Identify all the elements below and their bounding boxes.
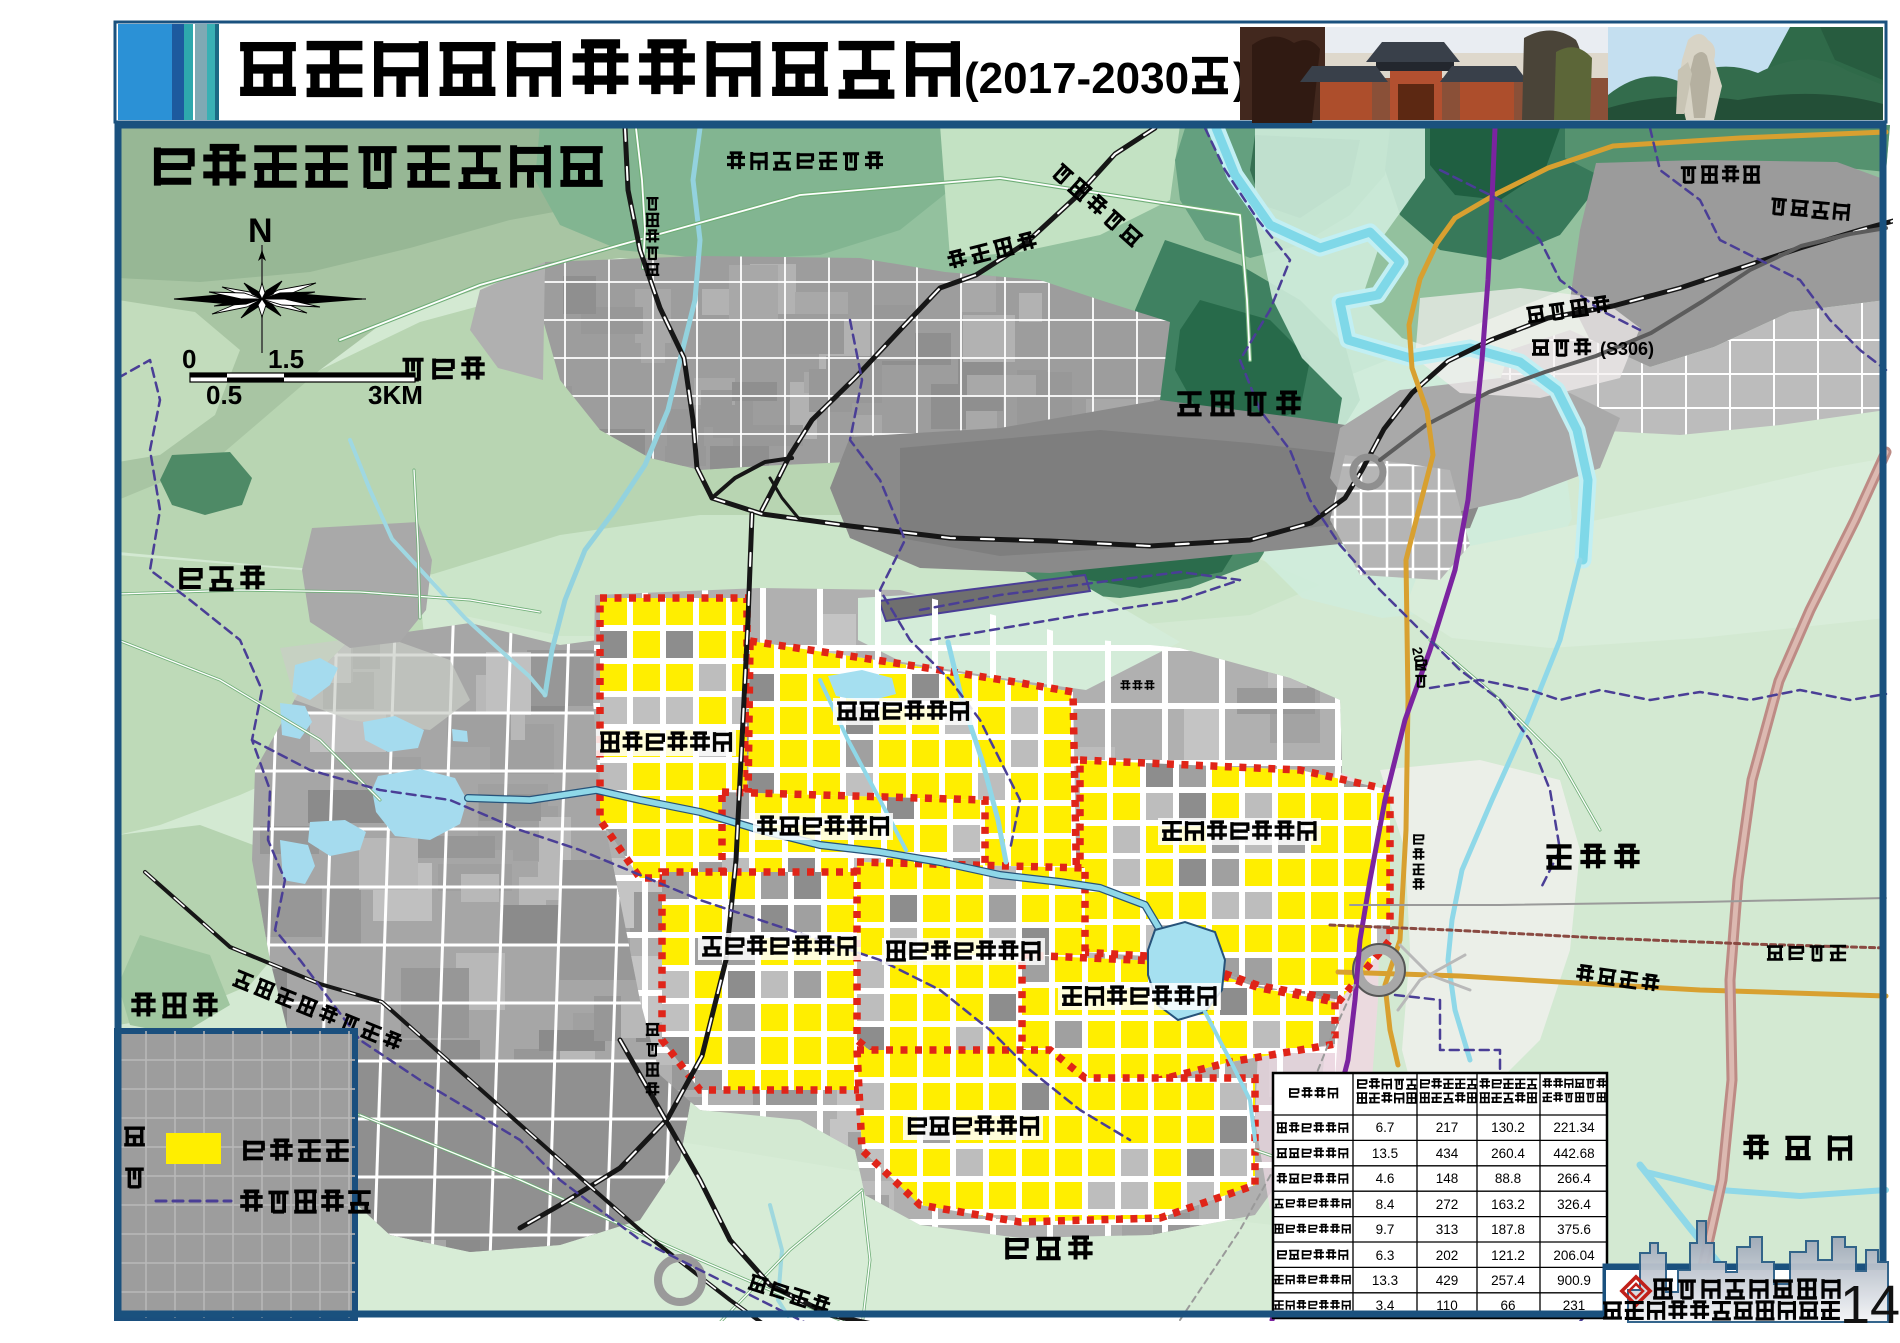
svg-text:N: N (248, 212, 273, 250)
svg-text:266.4: 266.4 (1557, 1171, 1591, 1186)
svg-text:375.6: 375.6 (1557, 1222, 1591, 1237)
svg-text:202: 202 (1436, 1248, 1459, 1263)
svg-text:3KM: 3KM (368, 380, 423, 410)
svg-text:0.5: 0.5 (206, 380, 242, 410)
svg-text:9.7: 9.7 (1376, 1222, 1395, 1237)
svg-text:326.4: 326.4 (1557, 1197, 1591, 1212)
svg-text:187.8: 187.8 (1491, 1222, 1525, 1237)
svg-text:(S306): (S306) (1600, 339, 1654, 359)
svg-text:121.2: 121.2 (1491, 1248, 1525, 1263)
svg-text:148: 148 (1436, 1171, 1459, 1186)
svg-text:163.2: 163.2 (1491, 1197, 1525, 1212)
svg-text:257.4: 257.4 (1491, 1273, 1525, 1288)
svg-text:442.68: 442.68 (1553, 1146, 1594, 1161)
svg-text:6.7: 6.7 (1376, 1120, 1395, 1135)
svg-text:313: 313 (1436, 1222, 1459, 1237)
svg-text:429: 429 (1436, 1273, 1459, 1288)
svg-text:14: 14 (1840, 1275, 1900, 1335)
svg-text:13.5: 13.5 (1372, 1146, 1398, 1161)
svg-text:434: 434 (1436, 1146, 1459, 1161)
svg-text:130.2: 130.2 (1491, 1120, 1525, 1135)
svg-text:(2017-2030: (2017-2030 (964, 54, 1189, 103)
svg-text:13.3: 13.3 (1372, 1273, 1398, 1288)
svg-text:4.6: 4.6 (1376, 1171, 1395, 1186)
svg-text:1.5: 1.5 (268, 344, 304, 374)
svg-text:900.9: 900.9 (1557, 1273, 1591, 1288)
svg-text:260.4: 260.4 (1491, 1146, 1525, 1161)
svg-text:6.3: 6.3 (1376, 1248, 1395, 1263)
svg-text:88.8: 88.8 (1495, 1171, 1521, 1186)
svg-text:272: 272 (1436, 1197, 1459, 1212)
svg-text:8.4: 8.4 (1376, 1197, 1395, 1212)
svg-text:221.34: 221.34 (1553, 1120, 1595, 1135)
svg-text:217: 217 (1436, 1120, 1459, 1135)
svg-text:206.04: 206.04 (1553, 1248, 1595, 1263)
svg-text:0: 0 (182, 344, 196, 374)
